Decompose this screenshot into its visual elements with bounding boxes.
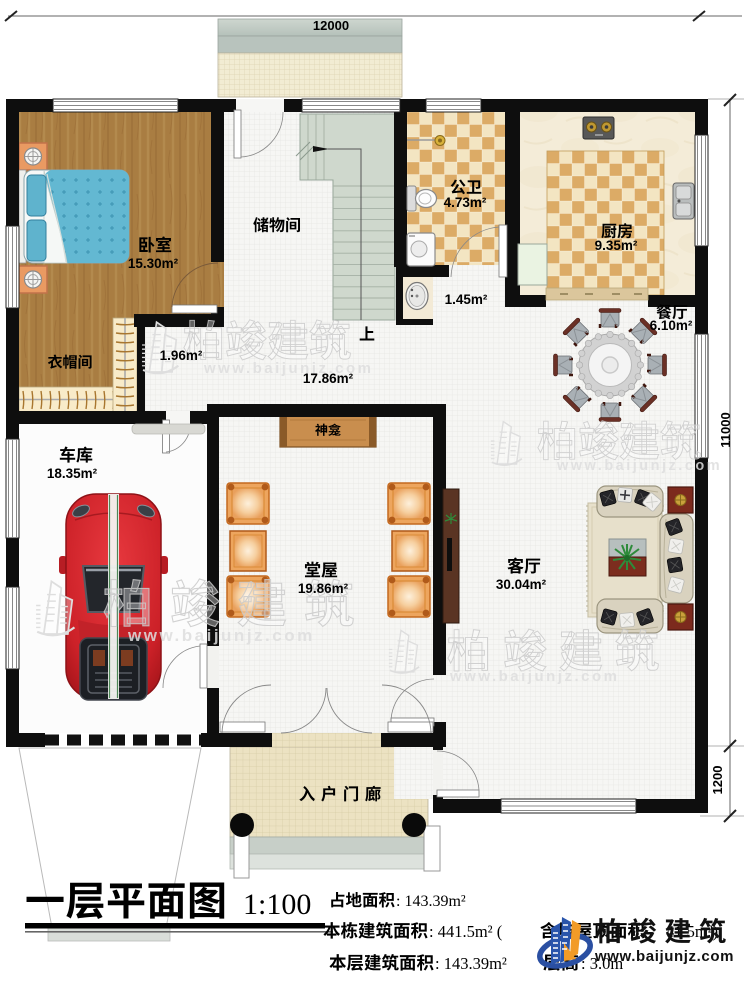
- svg-text:19.86m²: 19.86m²: [298, 581, 349, 596]
- svg-text:1.96m²: 1.96m²: [160, 348, 203, 363]
- svg-text:www.baijunjz.com: www.baijunjz.com: [556, 458, 722, 474]
- svg-text:www.baijunjz.com: www.baijunjz.com: [594, 948, 734, 965]
- svg-text:11000: 11000: [718, 412, 733, 447]
- svg-text:1200: 1200: [710, 766, 725, 795]
- svg-text:1:100: 1:100: [243, 888, 311, 921]
- svg-text:15.30m²: 15.30m²: [128, 256, 179, 271]
- svg-text:: 143.39m²: : 143.39m²: [396, 893, 466, 910]
- svg-text:www.baijunjz.com: www.baijunjz.com: [127, 626, 315, 645]
- svg-text:1.45m²: 1.45m²: [445, 292, 488, 307]
- svg-text:: 143.39m²: : 143.39m²: [435, 954, 507, 973]
- svg-text:12000: 12000: [313, 18, 349, 33]
- svg-text:18.35m²: 18.35m²: [47, 466, 98, 481]
- svg-text:30.04m²: 30.04m²: [496, 577, 547, 592]
- svg-text:www.baijunjz.com: www.baijunjz.com: [449, 668, 619, 685]
- svg-text:17.86m²: 17.86m²: [303, 371, 354, 386]
- svg-text:6.10m²: 6.10m²: [650, 318, 693, 333]
- svg-text:: 441.5m² (: : 441.5m² (: [429, 922, 502, 941]
- svg-text:4.73m²: 4.73m²: [444, 195, 487, 210]
- svg-text:9.35m²: 9.35m²: [595, 238, 638, 253]
